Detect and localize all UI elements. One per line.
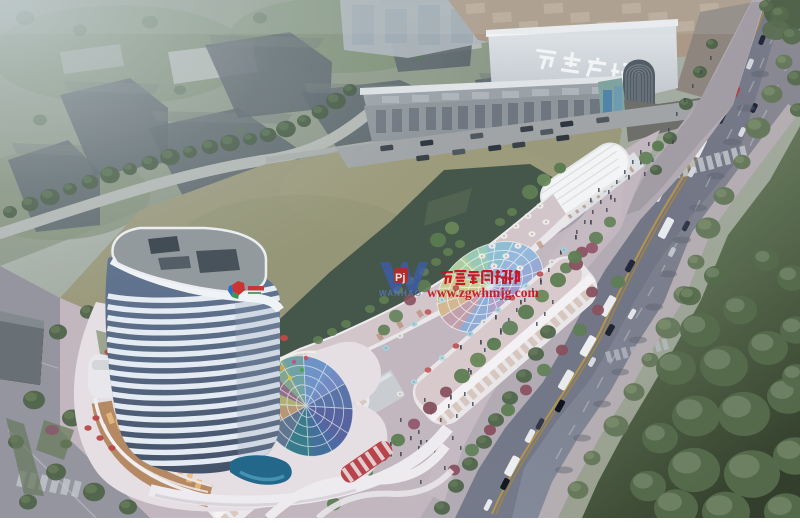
svg-text:WANHAO: WANHAO bbox=[379, 289, 422, 298]
svg-text:www.zgwhmjg.com: www.zgwhmjg.com bbox=[427, 285, 539, 300]
svg-text:Pj: Pj bbox=[395, 272, 405, 284]
